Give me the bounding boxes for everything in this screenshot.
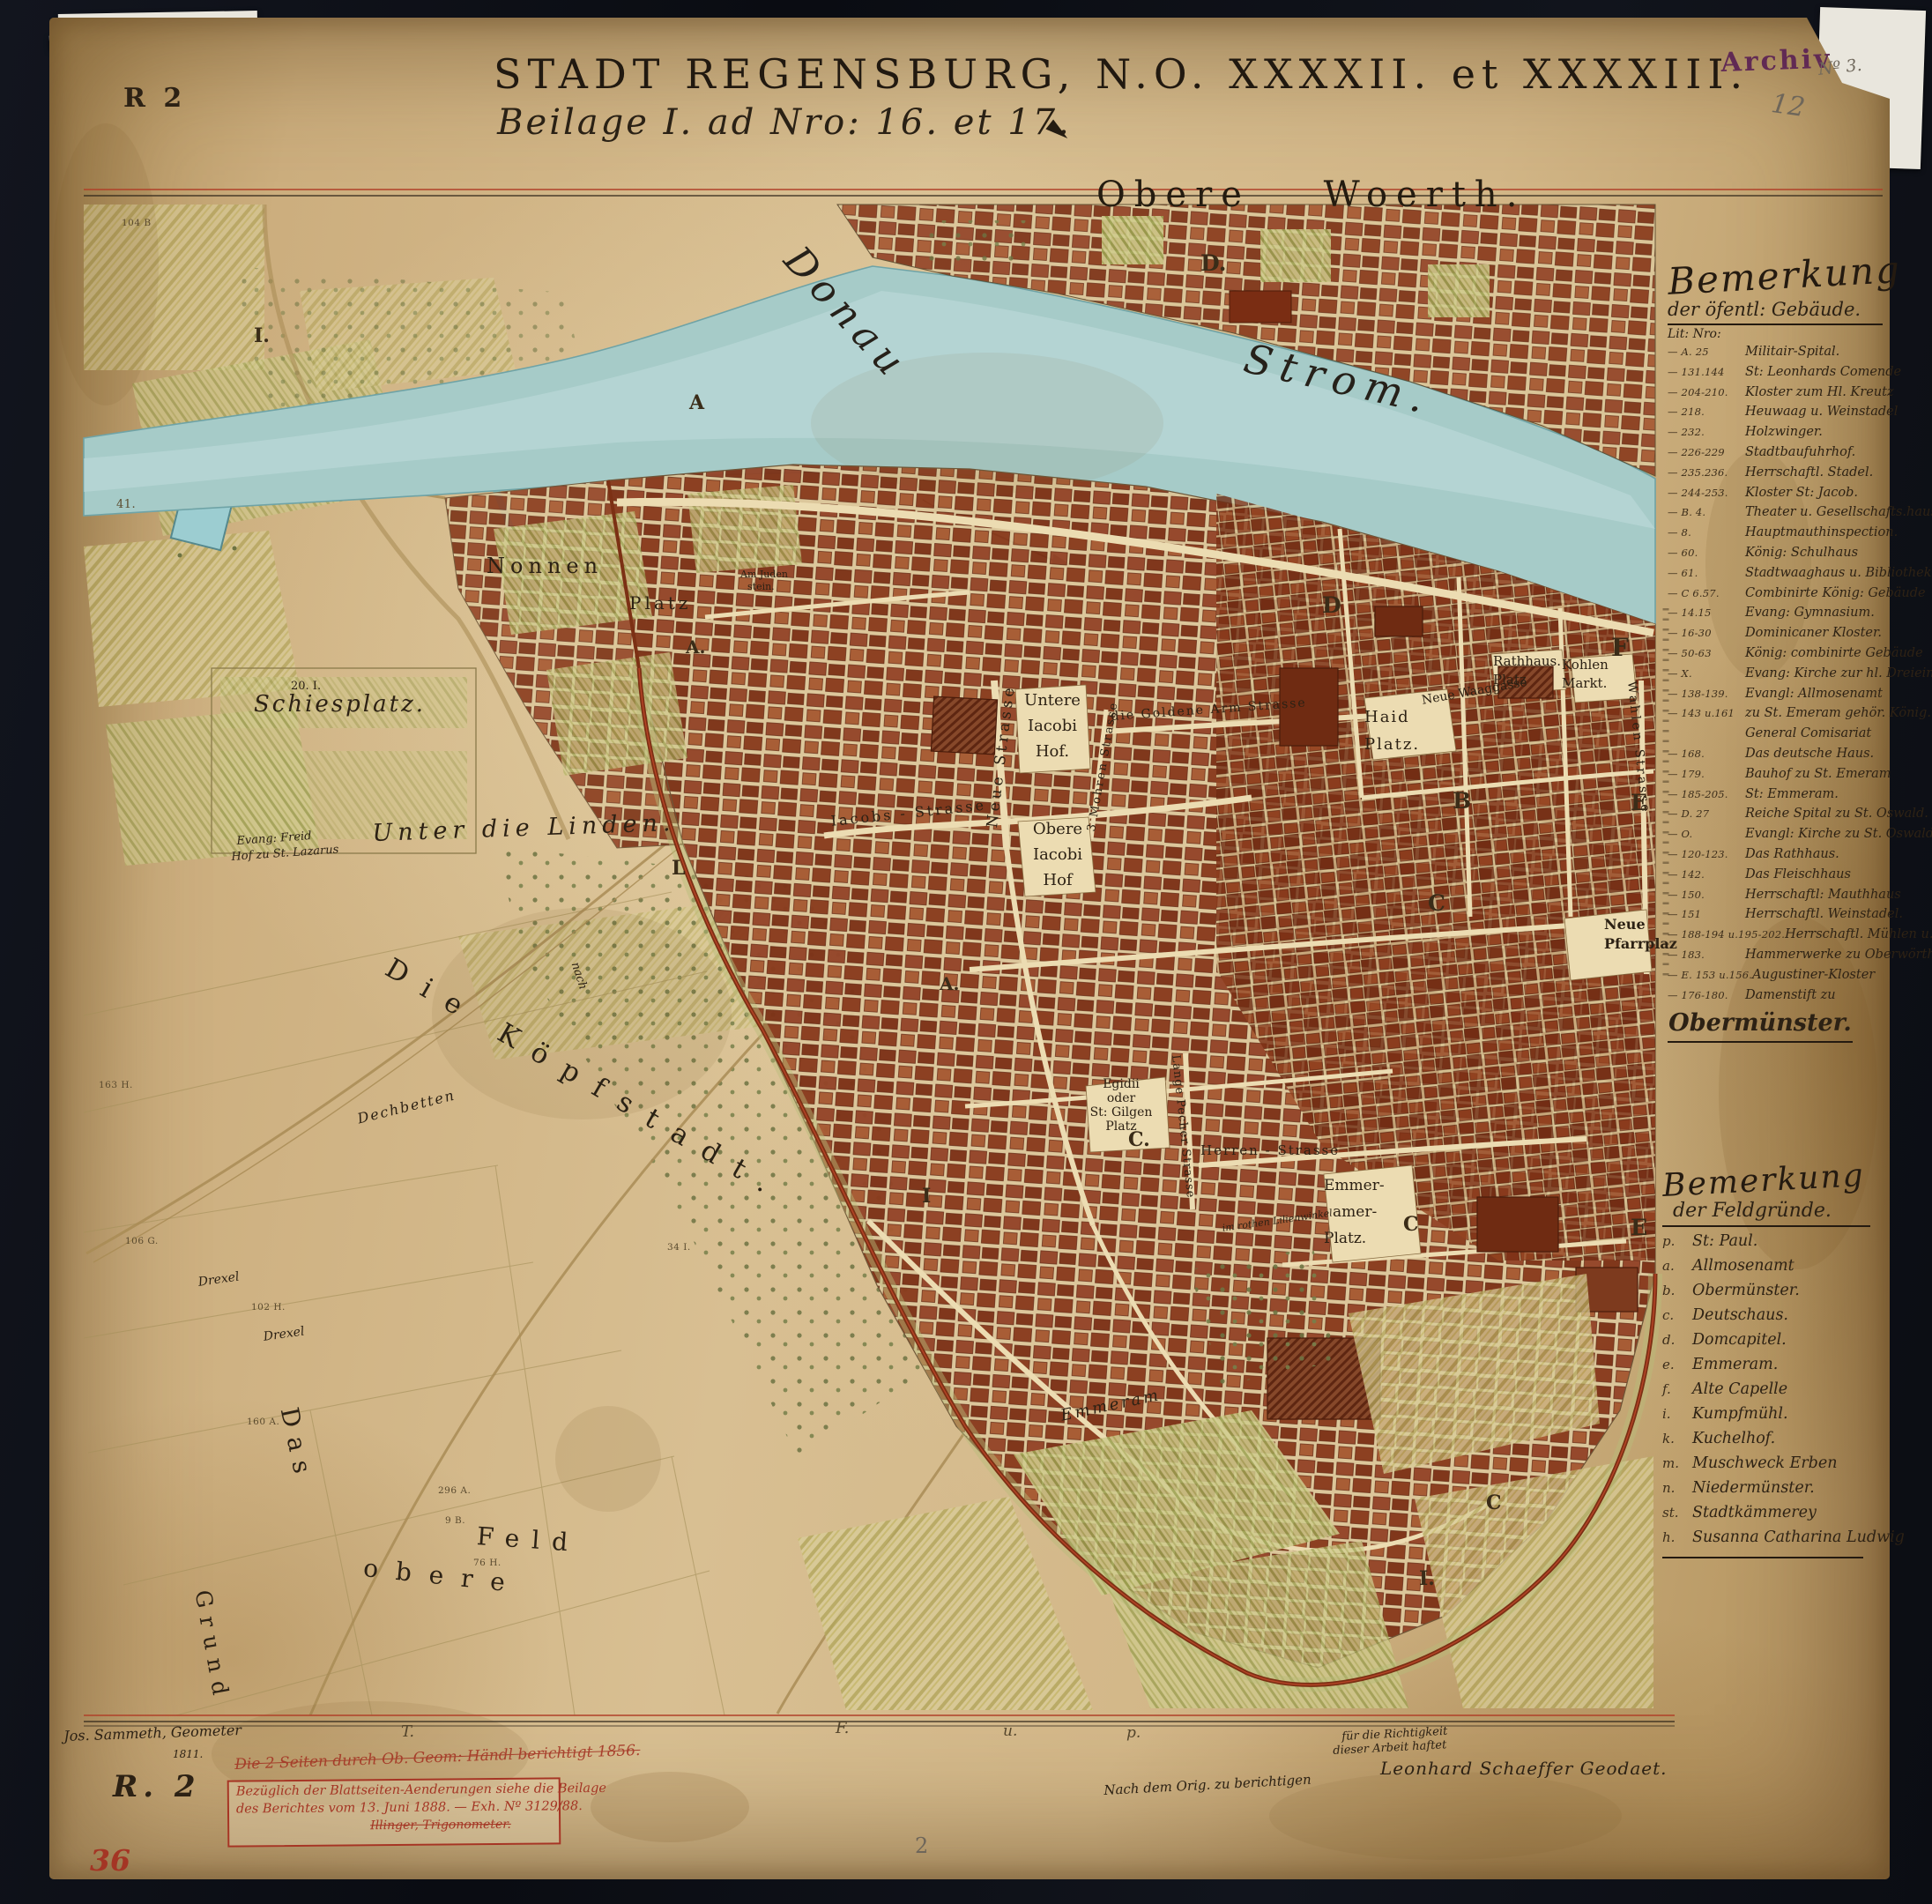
legend-entry-number: — 120-123. xyxy=(1668,848,1745,860)
district-letter: C xyxy=(1403,1215,1419,1235)
label-gilgen-line3: St: Gilgen xyxy=(1079,1105,1163,1119)
legend-entry-letter: f. xyxy=(1662,1381,1692,1397)
legend-entry-number: — 14.15 xyxy=(1668,606,1745,619)
label-nonnen-platz: Platz xyxy=(629,594,691,613)
legend-entry-text: zu St. Emeram gehör. König. xyxy=(1745,706,1931,720)
legend-entry: f. Alte Capelle xyxy=(1662,1380,1899,1405)
label-emmeramer-line2: amer- xyxy=(1324,1199,1385,1225)
legend-entry: — 235.236. Herrschaftl. Stadel. xyxy=(1668,465,1899,486)
label-feld: Feld xyxy=(476,1523,581,1557)
label-judenstein-2: stein. xyxy=(747,582,775,592)
legend-entry: m. Muschweck Erben xyxy=(1662,1454,1899,1479)
red-box-line2: des Berichtes vom 13. Juni 1888. — Exh. … xyxy=(236,1800,583,1817)
legend-entry: — 218. Heuwaag u. Weinstadel xyxy=(1668,405,1899,425)
legend-entry-text: Das deutsche Haus. xyxy=(1745,747,1874,761)
legend-entry-text: Herrschaftl: Mauthhaus xyxy=(1745,888,1901,902)
legend-entry: — 131.144 St: Leonhards Comende xyxy=(1668,365,1899,385)
label-emmeramer-platz: Emmer- amer- Platz. xyxy=(1324,1172,1385,1252)
label-gilgen-line1: Egidii xyxy=(1079,1077,1163,1091)
district-letter: B xyxy=(1453,790,1471,813)
geometer-year: 1811. xyxy=(173,1749,203,1760)
legend-entry-text: St: Leonhards Comende xyxy=(1745,365,1901,379)
legend-entry: — C 6.57. Combinirte König: Gebäude xyxy=(1668,586,1899,606)
legend-entry: — 151 Herrschaftl. Weinstadel. xyxy=(1668,907,1899,927)
legend-entry: — 179. Bauhof zu St. Emeram xyxy=(1668,767,1899,787)
district-letter: C. xyxy=(1128,1130,1150,1150)
label-judenstein-1: Am Juden xyxy=(740,569,788,580)
legend-entry: — 176-180. Damenstift zu xyxy=(1668,988,1899,1008)
legend-footer-obermuenster: Obermünster. xyxy=(1668,1009,1853,1043)
legend-entries: — A. 25 Militair-Spital. — 131.144 St: L… xyxy=(1668,345,1899,1008)
parcel-number: 41. xyxy=(116,499,136,511)
legend-entry-number: — 60. xyxy=(1668,547,1745,559)
legend-entry-number: — 204-210. xyxy=(1668,386,1745,398)
plate-number-top-left: R 2 xyxy=(123,85,186,113)
label-haid-platz: Haid Platz. xyxy=(1364,703,1420,758)
legend-entry: — 143 u.161 zu St. Emeram gehör. König. xyxy=(1668,706,1899,726)
legend-entry-number: — D. 27 xyxy=(1668,807,1745,820)
legend-entry-number: — 176-180. xyxy=(1668,989,1745,1001)
parcel-number: 76 H. xyxy=(473,1558,502,1568)
legend-entry-number: — 138-139. xyxy=(1668,688,1745,700)
legend-entry-text: Deutschaus. xyxy=(1692,1306,1788,1324)
parcel-number: 106 G. xyxy=(125,1237,159,1246)
label-emmeramer-line3: Platz. xyxy=(1324,1225,1385,1252)
legend-entry-text: Reiche Spital zu St. Oswald. xyxy=(1745,807,1928,821)
district-letter: F xyxy=(1611,635,1629,660)
legend-entry-text: St: Paul. xyxy=(1692,1232,1757,1250)
legend-entry-letter: e. xyxy=(1662,1357,1692,1372)
scanned-map-page: R 2 STADT REGENSBURG, N.O. XXXXII. et XX… xyxy=(0,0,1932,1904)
legend-entry-letter: b. xyxy=(1662,1283,1692,1298)
legend-entry-number: — 185-205. xyxy=(1668,788,1745,800)
legend-entry-text: Militair-Spital. xyxy=(1745,345,1839,359)
legend-entry: — 232. Holzwinger. xyxy=(1668,425,1899,445)
red-inventory-number: 36 xyxy=(90,1846,130,1877)
legend-entry: — 185-205. St: Emmeram. xyxy=(1668,787,1899,807)
label-haid-line1: Haid xyxy=(1364,703,1420,731)
district-letter: I. xyxy=(1419,1569,1435,1589)
parcel-number: 163 H. xyxy=(99,1081,133,1090)
legend-entry-text: Augustiner-Kloster xyxy=(1752,968,1875,982)
legend-entry: e. Emmeram. xyxy=(1662,1356,1899,1380)
label-pfarrplatz-line1: Neue xyxy=(1604,915,1677,934)
label-rathhaus-line1: Rathhaus. xyxy=(1493,652,1561,671)
legend-entry: — 204-210. Kloster zum Hl. Kreutz xyxy=(1668,385,1899,405)
legend-entry: — D. 27 Reiche Spital zu St. Oswald. xyxy=(1668,807,1899,827)
legend-entry-text: Heuwaag u. Weinstadel xyxy=(1745,405,1898,419)
field-grounds-legend: Bemerkung der Feldgründe. p. St: Paul. a… xyxy=(1662,1162,1899,1558)
legend-entry-text: Allmosenamt xyxy=(1692,1257,1795,1275)
legend-entry-text: Obermünster. xyxy=(1692,1282,1800,1299)
legend-entry-text: Evang: Kirche zur hl. Dreieinigkeit xyxy=(1745,666,1932,681)
legend-entry-text: Alte Capelle xyxy=(1692,1380,1787,1398)
label-haid-line2: Platz. xyxy=(1364,731,1420,758)
legend-entry-text: Stadtbaufuhrhof. xyxy=(1745,445,1855,459)
legend-entry-text: Herrschaftl. Weinstadel. xyxy=(1745,907,1903,921)
certification-signature: Leonhard Schaeffer Geodaet. xyxy=(1380,1759,1667,1778)
legend-entry: st. Stadtkämmerey xyxy=(1662,1504,1899,1528)
legend-entry: — 150. Herrschaftl: Mauthhaus xyxy=(1668,888,1899,908)
margin-letter: T. xyxy=(401,1724,414,1741)
legend-entry-number: — 183. xyxy=(1668,948,1745,961)
legend-entry: — 61. Stadtwaaghaus u. Bibliothek xyxy=(1668,566,1899,586)
legend-entry-text: General Comisariat xyxy=(1745,726,1871,740)
legend-entry-text: St: Emmeram. xyxy=(1745,787,1839,801)
label-gilgen-line4: Platz xyxy=(1079,1119,1163,1134)
legend-entry-text: Hauptmauthinspection. xyxy=(1745,525,1898,539)
legend-entry-text: König: Schulhaus xyxy=(1745,546,1858,560)
legend-entry: — 60. König: Schulhaus xyxy=(1668,546,1899,566)
legend-entry-text: Dominicaner Kloster. xyxy=(1745,626,1882,640)
legend-subtitle: der öfentl: Gebäude. xyxy=(1668,299,1899,320)
label-untere-jacobi-line2: Iacobi xyxy=(1010,713,1095,739)
legend-entry-number: — 142. xyxy=(1668,868,1745,881)
label-gilgen-line2: oder xyxy=(1079,1091,1163,1105)
legend-title: Bemerkung xyxy=(1661,1156,1899,1204)
parcel-number: 102 H. xyxy=(251,1303,286,1313)
label-nonnen: Nonnen xyxy=(487,555,603,577)
red-box-signature: Illinger, Trigonometer. xyxy=(370,1818,511,1833)
district-letter: C xyxy=(1428,892,1445,915)
map-title: STADT REGENSBURG, N.O. XXXXII. et XXXXII… xyxy=(494,53,1534,95)
legend-entry-text: Stadtwaaghaus u. Bibliothek xyxy=(1745,566,1932,580)
legend-underline xyxy=(1662,1557,1863,1558)
legend-entry: p. St: Paul. xyxy=(1662,1232,1899,1257)
legend-entry-text: Kumpfmühl. xyxy=(1692,1405,1788,1423)
legend-entry: — 244-253. Kloster St: Jacob. xyxy=(1668,486,1899,506)
label-herren-strasse: Herren - Strasse xyxy=(1200,1144,1340,1158)
legend-entry: — 16-30 Dominicaner Kloster. xyxy=(1668,626,1899,646)
pencil-number: 12 xyxy=(1770,90,1807,123)
legend-entry: — 14.15 Evang: Gymnasium. xyxy=(1668,606,1899,626)
legend-rule xyxy=(1668,324,1883,325)
legend-entry-letter: d. xyxy=(1662,1332,1692,1348)
legend-entry-number: — 188-194 u.195-202. xyxy=(1668,928,1785,941)
label-kohlen-markt: Kohlen Markt. xyxy=(1562,656,1609,693)
legend-entry-letter: k. xyxy=(1662,1431,1692,1447)
legend-entry-text: Herrschaftl. Stadel. xyxy=(1745,465,1873,480)
red-annotation-box: Bezüglich der Blattseiten-Aenderungen si… xyxy=(227,1777,561,1847)
legend-entry-letter: p. xyxy=(1662,1233,1692,1249)
legend-entry-number: — 50-63 xyxy=(1668,647,1745,659)
legend-lit-nro: Lit: Nro: xyxy=(1668,327,1899,345)
legend-entry-text: Kloster zum Hl. Kreutz xyxy=(1745,385,1894,399)
legend-entry-text: Kloster St: Jacob. xyxy=(1745,486,1858,500)
legend-entry-text: Niedermünster. xyxy=(1692,1479,1815,1497)
legend-entry-text: Evangl: Allmosenamt xyxy=(1745,687,1883,701)
legend-entry-text: Das Rathhaus. xyxy=(1745,847,1839,861)
legend-entry-number: — 131.144 xyxy=(1668,366,1745,378)
legend-entry-number: — O. xyxy=(1668,828,1745,840)
district-letter: A xyxy=(689,393,704,413)
label-neue-pfarrplatz: Neue Pfarrplaz xyxy=(1604,915,1677,954)
archiv-stamp: Archiv xyxy=(1720,46,1832,78)
legend-entry-number: — 179. xyxy=(1668,768,1745,780)
legend-entry-text: Theater u. Gesellschafts.haus xyxy=(1745,505,1932,519)
district-letter: C xyxy=(1486,1493,1502,1514)
parcel-number: 104 B xyxy=(122,219,152,228)
legend-entry-text: Holzwinger. xyxy=(1745,425,1823,439)
legend-entry: a. Allmosenamt xyxy=(1662,1257,1899,1282)
legend-entry: n. Niedermünster. xyxy=(1662,1479,1899,1504)
red-box-line1: Bezüglich der Blattseiten-Aenderungen si… xyxy=(236,1782,606,1799)
legend-entry: — 142. Das Fleischhaus xyxy=(1668,867,1899,888)
margin-letter: u. xyxy=(1003,1724,1017,1740)
legend-entry: — A. 25 Militair-Spital. xyxy=(1668,345,1899,365)
legend-entry: i. Kumpfmühl. xyxy=(1662,1405,1899,1430)
legend-entry: — 183. Hammerwerke zu Oberwörth. xyxy=(1668,948,1899,968)
legend-entry: d. Domcapitel. xyxy=(1662,1331,1899,1356)
legend-entry-number: — 61. xyxy=(1668,567,1745,579)
label-pfarrplatz-line2: Pfarrplaz xyxy=(1604,934,1677,954)
legend-entry: — 188-194 u.195-202. Herrschaftl. Mühlen… xyxy=(1668,927,1899,948)
label-emmeramer-line1: Emmer- xyxy=(1324,1172,1385,1199)
legend-entry-number: — X. xyxy=(1668,667,1745,680)
legend-entry-text: Das Fleischhaus xyxy=(1745,867,1851,881)
legend-entry-number: — B. 4. xyxy=(1668,506,1745,518)
legend-entry: — 138-139. Evangl: Allmosenamt xyxy=(1668,687,1899,707)
legend-entry-text: Evang: Gymnasium. xyxy=(1745,606,1875,620)
public-buildings-legend: Bemerkung der öfentl: Gebäude. Lit: Nro:… xyxy=(1668,254,1899,1043)
legend-entry-text: Susanna Catharina Ludwig xyxy=(1692,1528,1905,1546)
legend-entry-text: Muschweck Erben xyxy=(1692,1454,1838,1472)
page-number: 2 xyxy=(915,1835,928,1857)
district-letter: E xyxy=(1631,792,1647,814)
legend-entry-text: Damenstift zu xyxy=(1745,988,1836,1002)
label-untere-jacobi-line3: Hof. xyxy=(1010,739,1095,764)
legend-entry-text: Combinirte König: Gebäude xyxy=(1745,586,1926,600)
legend-entry-text: Hammerwerke zu Oberwörth. xyxy=(1745,948,1932,962)
legend-entry-text: Stadtkämmerey xyxy=(1692,1504,1817,1521)
legend-entry: — 120-123. Das Rathhaus. xyxy=(1668,847,1899,867)
district-letter: E xyxy=(1631,1216,1647,1239)
legend-entry: — X. Evang: Kirche zur hl. Dreieinigkeit xyxy=(1668,666,1899,687)
legend-entry-number: — 168. xyxy=(1668,747,1745,760)
legend-entry-number: — 8. xyxy=(1668,526,1745,539)
parcel-number: 9 B. xyxy=(445,1516,465,1526)
legend-entry-letter: m. xyxy=(1662,1455,1692,1471)
legend-entry-text: Emmeram. xyxy=(1692,1356,1778,1373)
legend-entry: General Comisariat xyxy=(1668,726,1899,747)
legend-entry: — E. 153 u.156. Augustiner-Kloster xyxy=(1668,968,1899,988)
legend-entry-letter: a. xyxy=(1662,1258,1692,1274)
legend-entries: p. St: Paul. a. Allmosenamt b. Obermünst… xyxy=(1662,1232,1899,1553)
legend-entry-text: König: combinirte Gebäude xyxy=(1745,646,1923,660)
legend-entry: b. Obermünster. xyxy=(1662,1282,1899,1306)
legend-entry-number: — E. 153 u.156. xyxy=(1668,969,1752,981)
legend-entry: — 8. Hauptmauthinspection. xyxy=(1668,525,1899,546)
district-letter: L xyxy=(672,859,685,879)
parcel-number: 296 A. xyxy=(438,1486,471,1496)
label-untere-jacobi-line1: Untere xyxy=(1010,688,1095,713)
map-subtitle: Beilage I. ad Nro: 16. et 17. xyxy=(476,104,1093,141)
legend-rule xyxy=(1662,1225,1870,1227)
legend-entry-number: — 143 u.161 xyxy=(1668,707,1745,719)
legend-entry-number: — 244-253. xyxy=(1668,487,1745,499)
legend-entry-number: — 150. xyxy=(1668,889,1745,901)
label-kohlen-line2: Markt. xyxy=(1562,674,1609,693)
district-letter-island-d: D. xyxy=(1200,252,1227,275)
legend-title: Bemerkung xyxy=(1667,248,1899,303)
parcel-number: 34 I. xyxy=(667,1243,691,1253)
legend-entry-letter: n. xyxy=(1662,1480,1692,1496)
district-letter: I xyxy=(922,1186,931,1207)
plate-number-bottom-left: R. 2 xyxy=(113,1772,201,1804)
legend-entry-text: Herrschaftl. Mühlen u. xyxy=(1785,927,1932,941)
legend-entry: — O. Evangl: Kirche zu St. Oswald. xyxy=(1668,827,1899,847)
legend-entry: h. Susanna Catharina Ludwig xyxy=(1662,1528,1899,1553)
legend-entry-number: — 218. xyxy=(1668,405,1745,418)
legend-entry-number: — 232. xyxy=(1668,426,1745,438)
legend-entry-number: — 235.236. xyxy=(1668,466,1745,479)
legend-entry: — 50-63 König: combinirte Gebäude xyxy=(1668,646,1899,666)
legend-entry-text: Evangl: Kirche zu St. Oswald. xyxy=(1745,827,1932,841)
legend-entry-letter: i. xyxy=(1662,1406,1692,1422)
label-kohlen-line1: Kohlen xyxy=(1562,656,1609,674)
label-untere-jacobi-hof: Untere Iacobi Hof. xyxy=(1010,688,1095,764)
legend-entry-letter: st. xyxy=(1662,1505,1692,1521)
legend-entry: — 168. Das deutsche Haus. xyxy=(1668,747,1899,767)
island-name-label: Obere Woerth. xyxy=(1096,176,1467,213)
legend-entry-number: — A. 25 xyxy=(1668,346,1745,358)
label-schiessplatz: Schiesplatz. xyxy=(254,693,426,717)
district-letter: A. xyxy=(686,638,705,657)
label-obere-jacobi-line3: Hof xyxy=(1015,867,1100,893)
label-obere-jacobi-line2: Iacobi xyxy=(1015,842,1100,867)
legend-entry-number: — 226-229 xyxy=(1668,446,1745,458)
label-gilgen-platz: Egidii oder St: Gilgen Platz xyxy=(1079,1077,1163,1134)
legend-entry: — 226-229 Stadtbaufuhrhof. xyxy=(1668,445,1899,465)
legend-entry-text: Domcapitel. xyxy=(1692,1331,1787,1349)
legend-entry-letter: h. xyxy=(1662,1529,1692,1545)
legend-entry-text: Kuchelhof. xyxy=(1692,1430,1775,1447)
legend-entry: — B. 4. Theater u. Gesellschafts.haus xyxy=(1668,505,1899,525)
district-letter: D xyxy=(1322,594,1341,617)
legend-subtitle: der Feldgründe. xyxy=(1662,1200,1899,1222)
legend-entry: c. Deutschaus. xyxy=(1662,1306,1899,1331)
district-letter: A. xyxy=(940,975,959,993)
legend-entry-text: Bauhof zu St. Emeram xyxy=(1745,767,1891,781)
margin-letter: p. xyxy=(1126,1726,1141,1742)
parcel-number: 160 A. xyxy=(247,1417,279,1427)
district-letter: I. xyxy=(254,326,270,346)
legend-entry: k. Kuchelhof. xyxy=(1662,1430,1899,1454)
legend-entry-number: — C 6.57. xyxy=(1668,587,1745,599)
legend-entry-letter: c. xyxy=(1662,1307,1692,1323)
margin-letter: F. xyxy=(836,1721,849,1737)
legend-entry-number: — 16-30 xyxy=(1668,627,1745,639)
legend-entry-number: — 151 xyxy=(1668,908,1745,920)
